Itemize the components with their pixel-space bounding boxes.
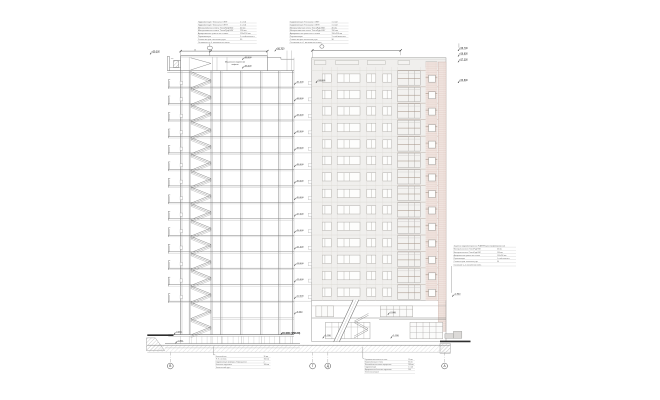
svg-text:Выравнивающая стяжка: Выравнивающая стяжка	[365, 362, 383, 364]
svg-text:Основание ж.-б. монолитная пли: Основание ж.-б. монолитная плита	[198, 42, 231, 44]
svg-text:+59.300: +59.300	[151, 51, 160, 53]
svg-text:+1.200: +1.200	[392, 335, 400, 337]
svg-text:1 слой: 1 слой	[240, 23, 246, 26]
svg-text:Стяжка из цем.-песчаного р-ра: Стяжка из цем.-песчаного р-ра	[198, 39, 227, 41]
svg-text:35 мм: 35 мм	[408, 362, 412, 364]
svg-text:1 слой: 1 слой	[332, 20, 338, 23]
svg-text:2: 2	[264, 361, 265, 363]
svg-text:1 слой: 1 слой	[240, 20, 246, 23]
svg-text:+30.000: +30.000	[296, 197, 305, 199]
svg-text:+42.000: +42.000	[296, 131, 305, 133]
svg-text:150х150 мм: 150х150 мм	[497, 255, 507, 257]
svg-text:+36.000: +36.000	[296, 164, 305, 166]
svg-text:+27.000: +27.000	[296, 213, 305, 215]
svg-text:+56.700: +56.700	[459, 48, 468, 50]
svg-text:+39.000: +39.000	[296, 148, 305, 150]
svg-text:12: 12	[194, 49, 196, 51]
svg-text:Минераловатная плита 'ТехноРуф: Минераловатная плита 'ТехноРуф Н30'	[290, 29, 326, 32]
svg-text:Гидроизоляция 'Техноэласт ЭПП': Гидроизоляция 'Техноэласт ЭПП'	[290, 24, 321, 26]
svg-text:100: 100	[408, 369, 411, 371]
svg-text:Гидроизоляция 'Техноэласт ЭПП': Гидроизоляция 'Техноэласт ЭПП'	[198, 24, 229, 26]
svg-text:40 мм: 40 мм	[240, 27, 246, 29]
svg-text:Гидроизоляция 'Техноэласт ЭКП': Гидроизоляция 'Техноэласт ЭКП'	[290, 21, 320, 23]
svg-text:Пароизоляция: Пароизоляция	[454, 258, 465, 260]
svg-text:+33.000: +33.000	[296, 180, 305, 182]
svg-text:Г: Г	[312, 364, 314, 368]
svg-text:+53.800: +53.800	[459, 80, 468, 82]
svg-text:1 слой внахлест: 1 слой внахлест	[240, 35, 255, 38]
svg-text:Основание ж.-б. монолитная пли: Основание ж.-б. монолитная плита	[454, 264, 482, 266]
svg-text:Гидроизоляция 'Техноэласт ЭКП': Гидроизоляция 'Техноэласт ЭКП'	[198, 21, 228, 23]
svg-text:+53.800: +53.800	[317, 80, 326, 82]
svg-text:Минераловатная плита 'ТехноРуф: Минераловатная плита 'ТехноРуф Н30'	[198, 29, 234, 32]
svg-text:+56.800: +56.800	[459, 54, 468, 56]
svg-text:В: В	[169, 364, 171, 368]
svg-text:100 мм: 100 мм	[264, 364, 270, 366]
svg-text:+21.000: +21.000	[296, 246, 305, 248]
svg-text:+56.700: +56.700	[276, 48, 285, 50]
svg-text:Армированная цементная стяжка: Армированная цементная стяжка	[454, 254, 480, 257]
svg-text:Минеральная вата 'ТехноРуф Н30: Минеральная вата 'ТехноРуф Н30'	[454, 248, 482, 251]
svg-text:150х150 мм: 150х150 мм	[332, 33, 343, 35]
svg-text:+18.000: +18.000	[296, 263, 305, 265]
svg-text:160 мм: 160 мм	[264, 359, 270, 361]
svg-text:1 слой: 1 слой	[332, 23, 338, 26]
svg-text:Минераловатная плита 'ТехноРуф: Минераловатная плита 'ТехноРуф В60'	[290, 26, 326, 29]
svg-text:+58.400: +58.400	[244, 57, 253, 59]
svg-text:1 слой внахлест: 1 слой внахлест	[332, 35, 347, 38]
svg-text:15 мм: 15 мм	[408, 359, 412, 361]
svg-text:+48.000: +48.000	[296, 98, 305, 100]
svg-text:160 мм: 160 мм	[408, 364, 413, 366]
svg-text:+3.600: +3.600	[296, 311, 304, 313]
svg-text:-0.450: -0.450	[175, 331, 182, 333]
svg-text:+45.000: +45.000	[296, 115, 305, 117]
svg-text:+56.400: +56.400	[244, 65, 253, 67]
svg-text:+1.200: +1.200	[324, 335, 332, 337]
svg-text:Стяжка из цем.-песчаного р-ра: Стяжка из цем.-песчаного р-ра	[290, 39, 319, 41]
svg-text:-1.350: -1.350	[177, 340, 184, 342]
svg-text:Ж. Б. система: Ж. Б. система	[216, 359, 227, 361]
svg-text:Бетонная подготовка: Бетонная подготовка	[216, 364, 232, 366]
svg-text:150х150 мм: 150х150 мм	[240, 33, 251, 35]
svg-text:1 слой внахлест: 1 слой внахлест	[497, 257, 510, 260]
svg-text:30: 30	[497, 261, 499, 263]
svg-text:+24.000: +24.000	[296, 230, 305, 232]
svg-text:40 мм: 40 мм	[332, 27, 338, 29]
svg-text:Основание ж.-б. монолитная пли: Основание ж.-б. монолитная плита	[290, 42, 323, 44]
svg-text:+57.300: +57.300	[459, 59, 468, 61]
svg-text:Пароизоляция: Пароизоляция	[198, 36, 211, 38]
svg-text:+51.000: +51.000	[296, 82, 305, 84]
svg-text:Минеральная вата 'ТехноРуф Н30: Минеральная вата 'ТехноРуф Н30'	[454, 251, 482, 254]
svg-text:±0.000 (158.20): ±0.000 (158.20)	[282, 331, 300, 335]
svg-text:Железобетонная плита перекрыти: Железобетонная плита перекрытия	[365, 364, 392, 366]
svg-text:150 мм: 150 мм	[240, 30, 247, 32]
svg-text:+15.000: +15.000	[296, 279, 305, 281]
svg-text:Гидроизоляция: Гидроизоляция	[365, 367, 376, 369]
svg-text:Пароизоляция: Пароизоляция	[290, 36, 303, 38]
svg-text:30: 30	[240, 39, 242, 41]
svg-text:+12.000: +12.000	[296, 296, 305, 298]
svg-text:Керамическая плитка на клею: Керамическая плитка на клею	[365, 359, 388, 361]
svg-text:150 мм: 150 мм	[332, 30, 339, 32]
svg-text:150 мм: 150 мм	[497, 252, 503, 254]
svg-text:Защитная гидроизоляционная PL: Защитная гидроизоляционная PLANTER-geo (…	[454, 245, 506, 248]
svg-text:Стяжка из цем. песчаного р-ра: Стяжка из цем. песчаного р-ра	[454, 261, 478, 263]
svg-text:+1.900: +1.900	[454, 294, 462, 296]
svg-text:Армированная цементная стяжка: Армированная цементная стяжка	[290, 32, 321, 35]
svg-text:Минераловатная плита 'ТехноРуф: Минераловатная плита 'ТехноРуф В60'	[198, 26, 234, 29]
svg-text:+2.000: +2.000	[389, 312, 397, 314]
svg-text:лифтов: лифтов	[232, 63, 239, 66]
svg-text:30: 30	[332, 39, 334, 41]
svg-text:Армированная цементная стяжка: Армированная цементная стяжка	[198, 32, 229, 35]
